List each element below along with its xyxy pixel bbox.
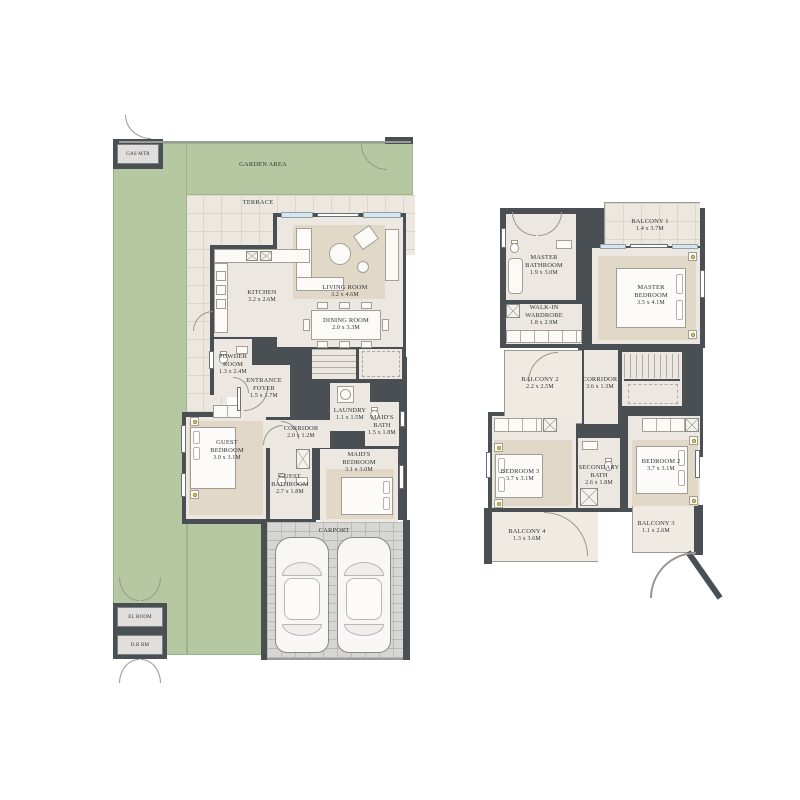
basin — [582, 441, 598, 450]
plot-boundary — [119, 141, 411, 143]
wardrobe-label: WALK-IN WARDROBE1.8 x 2.9M — [517, 304, 571, 328]
dining-label: DINING ROOM2.0 x 3.3M — [314, 317, 378, 333]
garden-label: GARDEN AREA — [223, 161, 303, 169]
shower — [296, 449, 310, 469]
lamp — [688, 252, 697, 261]
laundry-label: LAUNDRY1.1 x 1.5M — [328, 407, 372, 423]
window — [181, 473, 186, 497]
window — [400, 411, 405, 427]
maids-bath-label: MAID'S BATH1.5 x 1.8M — [367, 414, 397, 438]
terrace-text: TERRACE — [228, 199, 288, 207]
tv-unit — [385, 229, 399, 281]
cabinet — [543, 418, 557, 432]
coffee-table — [329, 243, 351, 265]
chair — [361, 341, 372, 348]
bedroom2-label: BEDROOM 23.7 x 3.1M — [631, 458, 691, 474]
pillow — [193, 447, 200, 460]
stair-void — [362, 351, 400, 377]
balcony2-label: BALCONY 22.2 x 2.5M — [508, 376, 572, 392]
balcony3-door-arc — [650, 552, 696, 598]
lamp — [689, 496, 698, 505]
front-gate-door-arc — [125, 115, 151, 139]
terrace-label: TERRACE — [228, 199, 288, 207]
car — [337, 537, 391, 653]
el-room-label: EL ROOM — [117, 607, 163, 627]
wall — [484, 508, 492, 564]
balcony1-label: BALCONY 11.4 x 3.7M — [618, 218, 682, 234]
foyer-label: ENTRANCE FOYER1.5 x 1.7M — [242, 377, 286, 401]
master-bathroom-label: MASTER BATHROOM1.9 x 3.0M — [520, 254, 568, 278]
lamp — [494, 499, 503, 508]
closet — [642, 418, 686, 432]
el-room-text: EL ROOM — [128, 615, 152, 620]
washer-drum — [340, 389, 351, 400]
db-room-label: D.B RM — [117, 635, 163, 655]
pillow — [193, 431, 200, 444]
chair — [339, 302, 350, 309]
guest-bedroom-label: GUEST BEDROOM3.0 x 3.1M — [206, 439, 248, 463]
chair — [303, 319, 310, 331]
carport-label: CARPORT — [304, 527, 364, 535]
pillow — [676, 300, 683, 320]
carport-text: CARPORT — [304, 527, 364, 535]
appliance — [216, 285, 226, 295]
balcony4-label: BALCONY 41.3 x 3.6M — [495, 528, 559, 544]
secondary-bath-label: SECONDARY BATH2.6 x 1.8M — [573, 464, 625, 488]
lamp — [190, 490, 199, 499]
window — [181, 425, 186, 453]
driveway-edge — [267, 658, 403, 660]
stairs — [624, 354, 680, 378]
balcony-sliding-door — [630, 244, 668, 248]
stairs — [312, 349, 356, 379]
toilet-bowl — [510, 243, 519, 253]
gas-meter-text: GAS MTR — [126, 152, 150, 157]
ground-floor-plan: GAS MTR — [113, 125, 413, 695]
pillow — [676, 274, 683, 294]
window — [600, 244, 626, 249]
basin — [556, 240, 572, 249]
chair — [317, 341, 328, 348]
chair — [339, 341, 350, 348]
corridor-label: CORRIDOR2.0 x 1.2M — [273, 425, 329, 441]
window — [363, 212, 401, 218]
db-room-text: D.B RM — [131, 643, 149, 648]
pillow — [383, 481, 390, 494]
gate-door-arc — [141, 659, 161, 683]
closet — [494, 418, 542, 432]
ff-corridor-label: CORRIDOR3.6 x 1.3M — [572, 376, 628, 392]
chair — [317, 302, 328, 309]
kitchen-label: KITCHEN3.2 x 2.6M — [236, 289, 288, 305]
chair — [382, 319, 389, 331]
bedroom3-label: BEDROOM 33.7 x 3.1M — [490, 468, 550, 484]
window — [281, 212, 313, 218]
car — [275, 537, 329, 653]
maids-bedroom-label: MAID'S BEDROOM3.1 x 3.0M — [337, 451, 381, 475]
wardrobe-cabinets — [506, 330, 582, 343]
balcony3-label: BALCONY 31.1 x 2.6M — [624, 520, 688, 536]
toilet — [510, 240, 519, 253]
fridge — [216, 299, 226, 309]
window — [209, 351, 214, 369]
stair-flight — [628, 384, 678, 404]
pouf — [357, 261, 369, 273]
wall — [694, 505, 703, 555]
cabinet — [685, 418, 699, 432]
wall — [403, 520, 410, 660]
window — [399, 465, 404, 489]
kitchen-sink — [246, 251, 258, 261]
window — [700, 270, 705, 298]
lamp — [190, 417, 199, 426]
living-label: LIVING ROOM3.2 x 4.6M — [313, 284, 377, 300]
pillow — [383, 497, 390, 510]
master-bedroom-label: MASTER BEDROOM3.5 x 4.1M — [627, 284, 675, 308]
lamp — [688, 330, 697, 339]
stair-rail — [624, 379, 680, 381]
garden-bottom-strip — [187, 517, 267, 655]
gate-door-arc — [119, 659, 139, 683]
window — [501, 228, 506, 248]
sliding-door — [317, 213, 359, 217]
appliance — [216, 271, 226, 281]
window — [695, 450, 700, 478]
lamp — [494, 443, 503, 452]
garden-text: GARDEN AREA — [223, 161, 303, 169]
chair — [361, 302, 372, 309]
gas-meter-label: GAS MTR — [117, 144, 159, 164]
kitchen-hob — [260, 251, 272, 261]
window — [672, 244, 698, 249]
first-floor-plan: BALCONY 11.4 x 3.7M MASTER BATHROOM1.9 x… — [480, 200, 715, 605]
powder-label: POWDER ROOM1.3 x 2.4M — [217, 353, 249, 377]
lamp — [689, 436, 698, 445]
stair-rail — [356, 349, 359, 379]
guest-bathroom-label: GUEST BATHROOM2.7 x 1.8M — [267, 473, 313, 497]
shower — [580, 488, 598, 506]
